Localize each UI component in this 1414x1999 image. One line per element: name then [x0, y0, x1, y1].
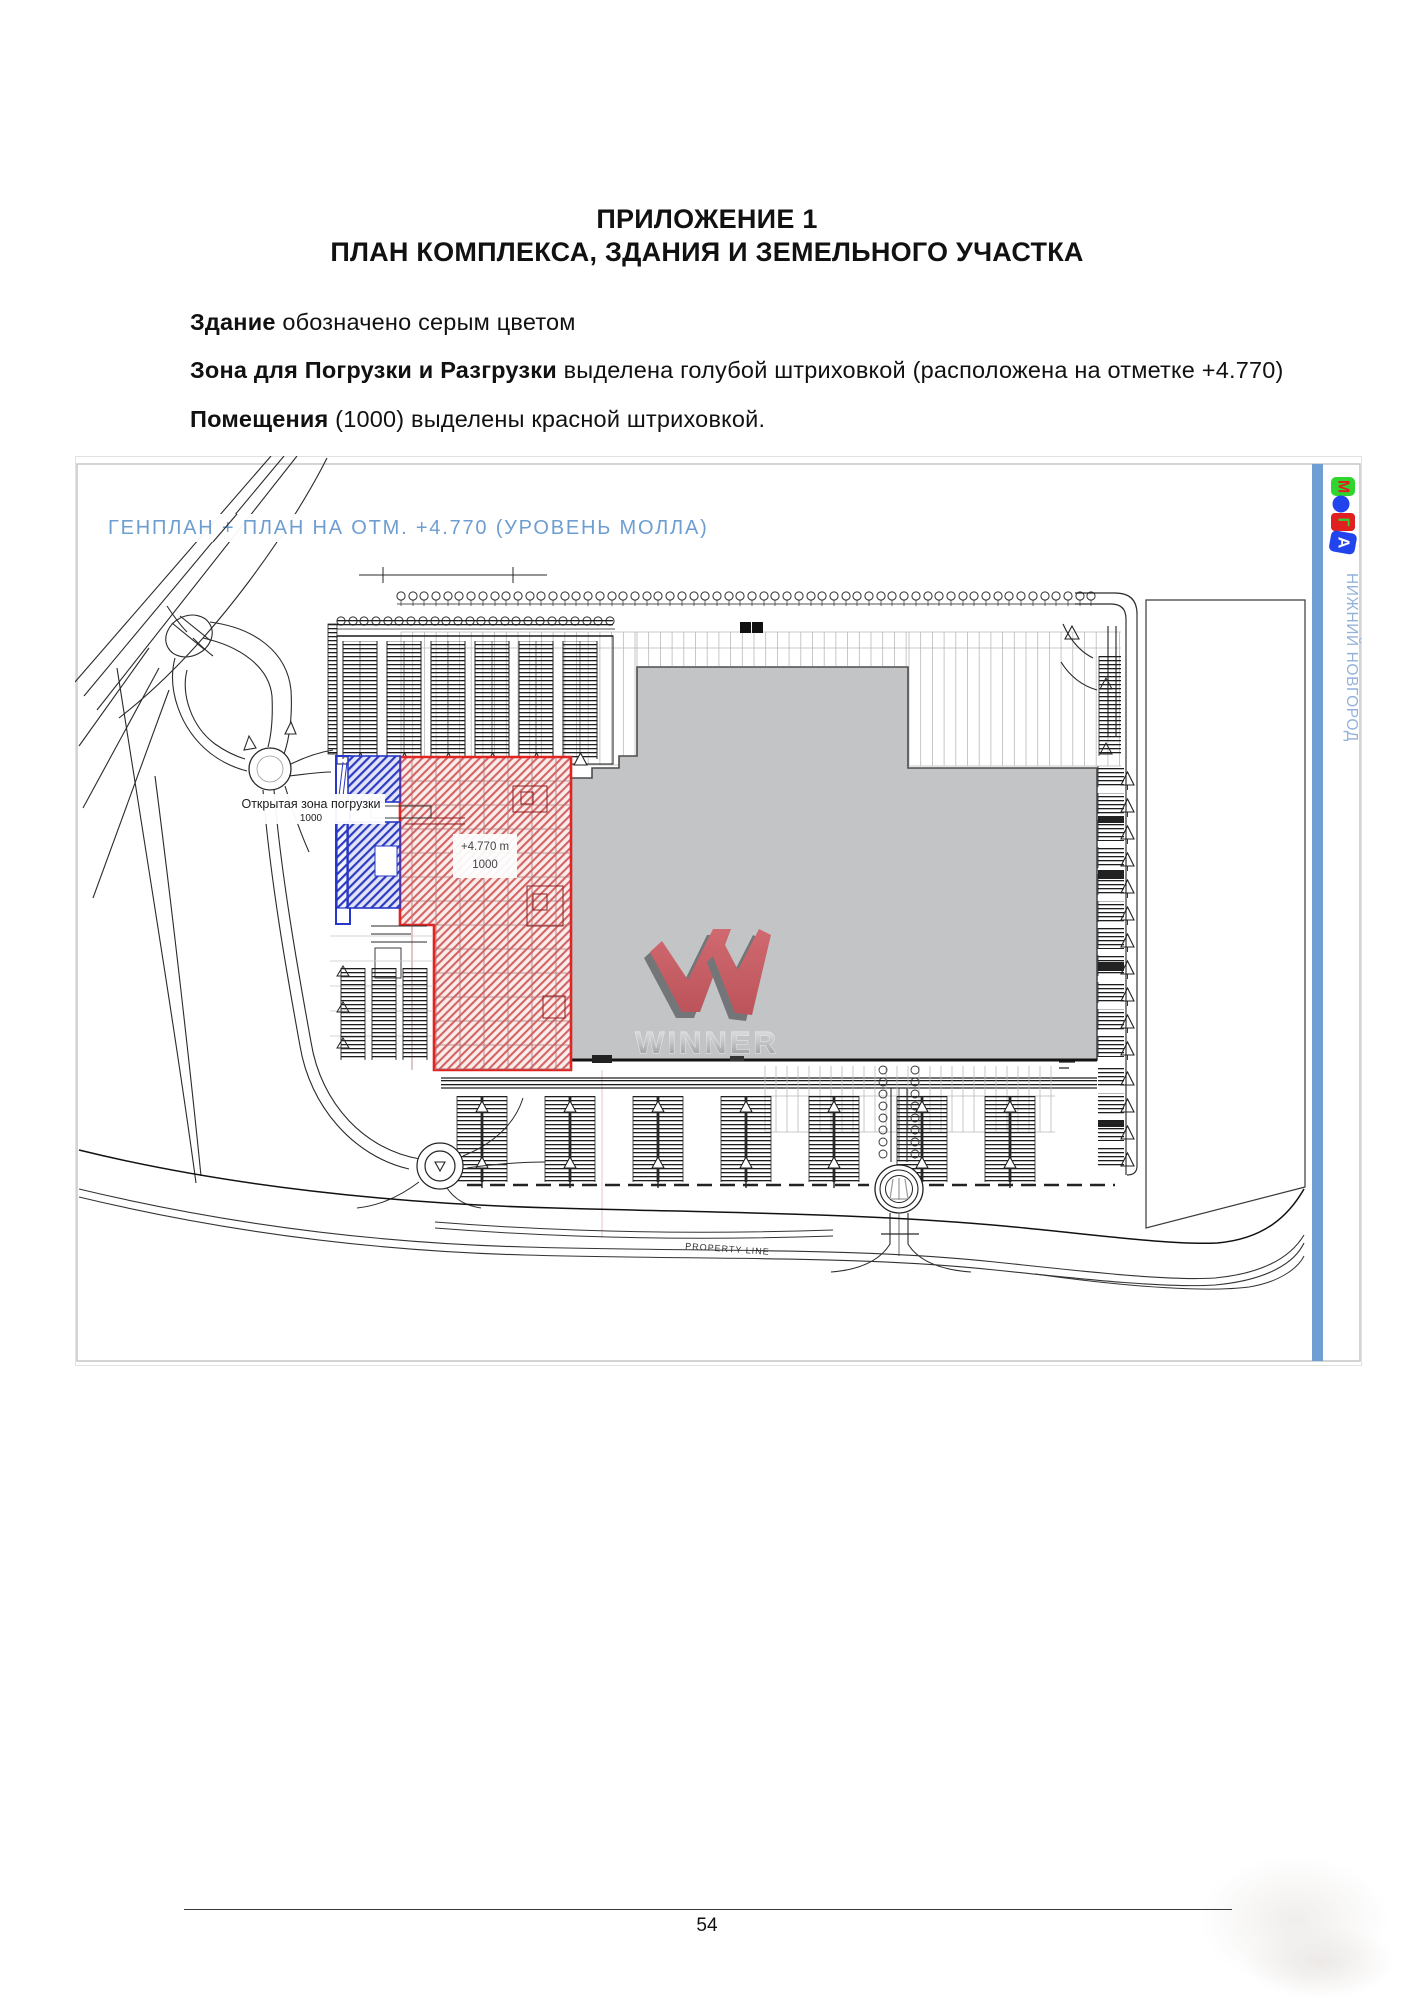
svg-text:1000: 1000	[300, 813, 323, 824]
svg-text:Г: Г	[1335, 517, 1352, 526]
svg-text:А: А	[1335, 537, 1352, 549]
svg-text:НИЖНИЙ НОВГОРОД: НИЖНИЙ НОВГОРОД	[1343, 573, 1361, 742]
svg-text:М: М	[1335, 480, 1352, 493]
svg-text:WINNER: WINNER	[635, 1025, 779, 1060]
svg-text:1000: 1000	[472, 859, 498, 871]
svg-text:Открытая зона погрузки: Открытая зона погрузки	[241, 797, 380, 811]
svg-text:+4.770 m: +4.770 m	[461, 841, 509, 853]
svg-text:ГЕНПЛАН + ПЛАН НА ОТМ. +4.770: ГЕНПЛАН + ПЛАН НА ОТМ. +4.770 (УРОВЕНЬ М…	[108, 517, 709, 539]
